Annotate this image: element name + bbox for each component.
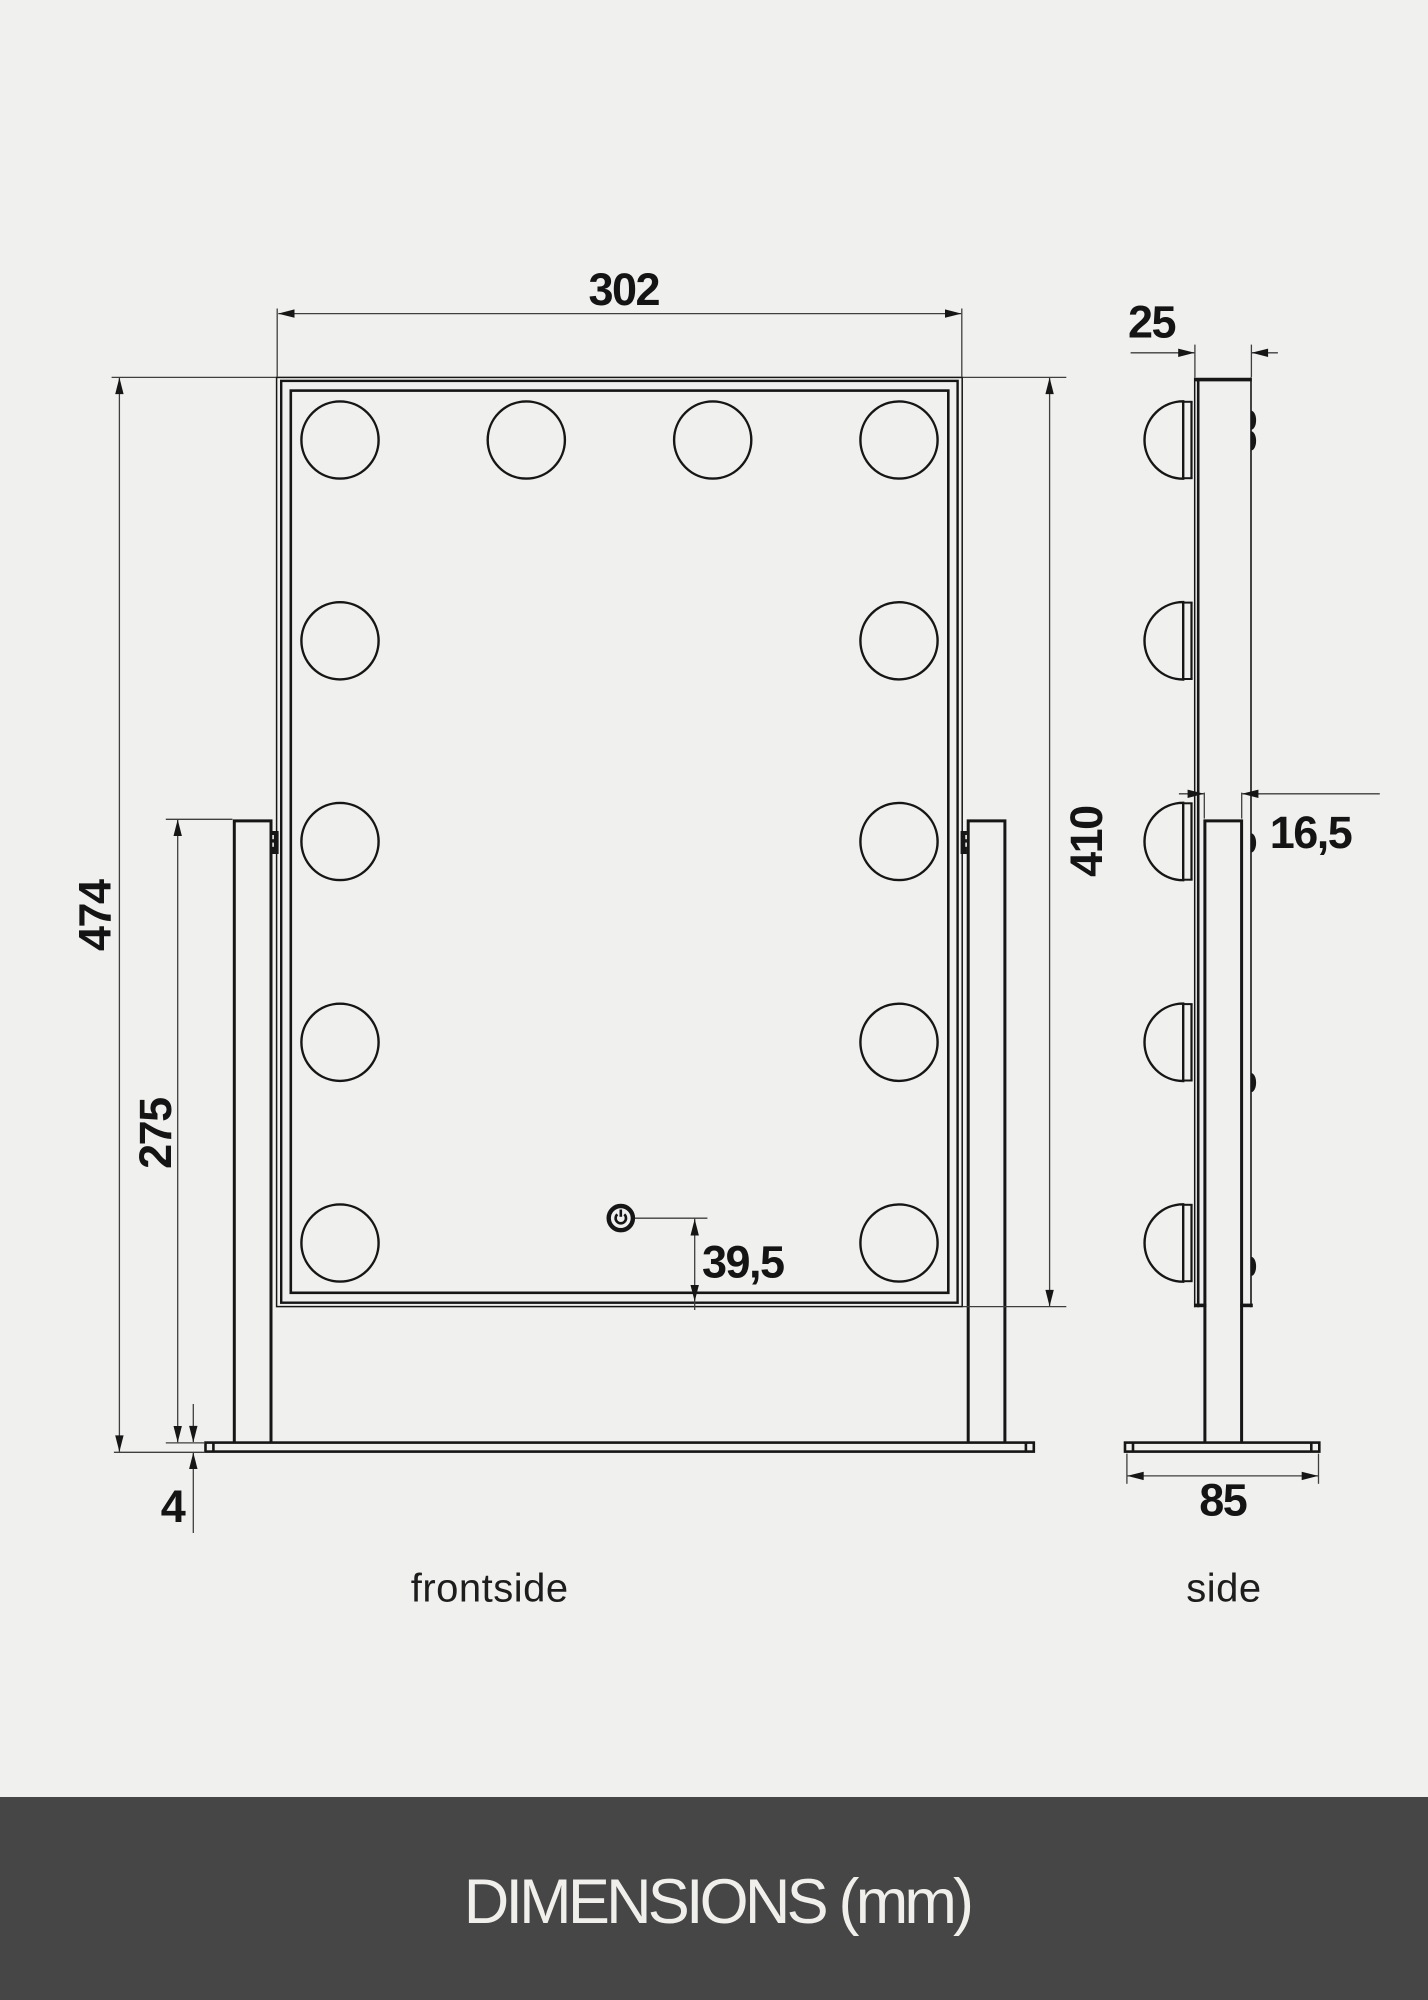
svg-text:39,5: 39,5 <box>702 1237 784 1288</box>
svg-text:16,5: 16,5 <box>1270 807 1352 858</box>
svg-text:85: 85 <box>1199 1475 1247 1526</box>
svg-text:side: side <box>1186 1567 1261 1611</box>
svg-text:4: 4 <box>161 1481 186 1532</box>
svg-text:25: 25 <box>1128 296 1176 347</box>
svg-text:410: 410 <box>1061 806 1112 877</box>
svg-text:DIMENSIONS (mm): DIMENSIONS (mm) <box>464 1867 971 1937</box>
svg-text:275: 275 <box>130 1098 181 1169</box>
svg-text:302: 302 <box>589 264 660 315</box>
svg-text:frontside: frontside <box>411 1567 569 1611</box>
svg-text:474: 474 <box>70 879 121 951</box>
